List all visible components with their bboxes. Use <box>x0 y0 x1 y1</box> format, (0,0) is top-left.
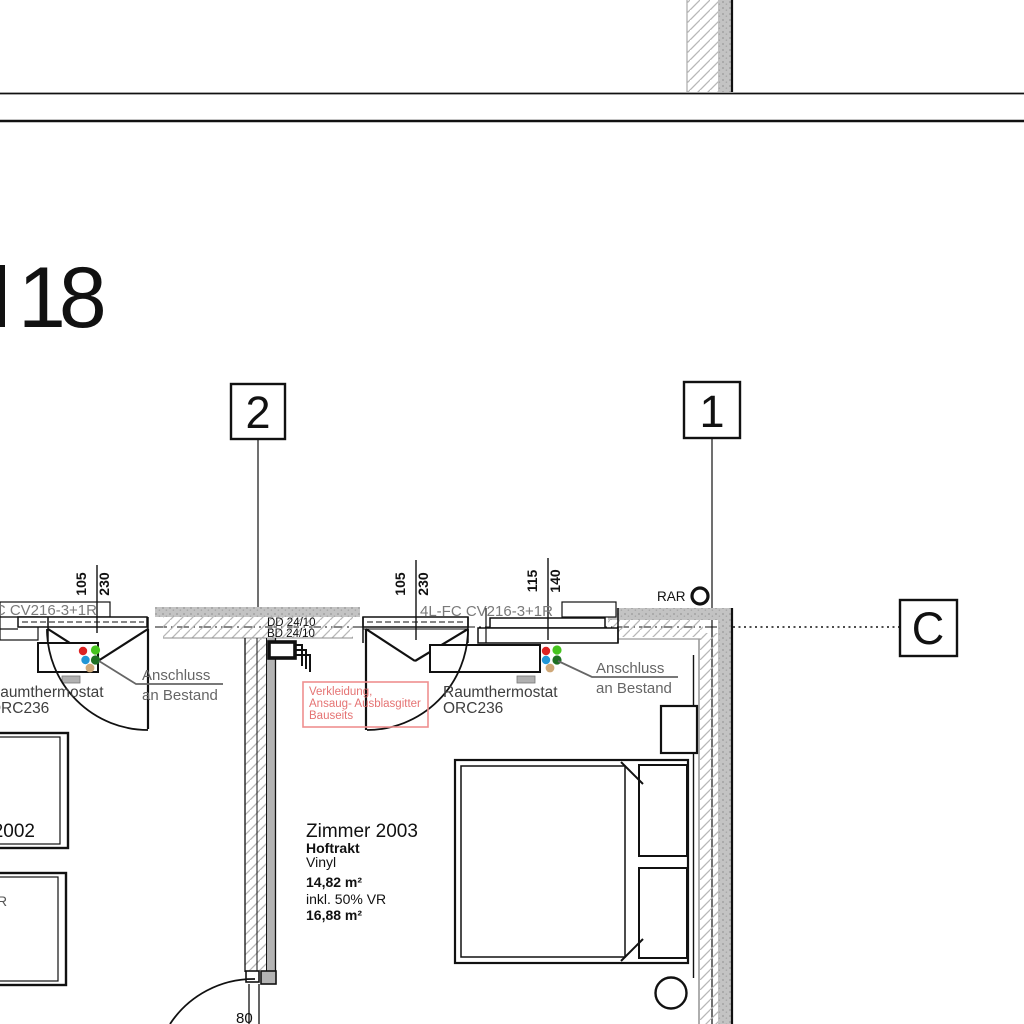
anschluss-right-2: an Bestand <box>596 680 672 697</box>
fancoil-label-right: 4L-FC CV216-3+1R <box>420 603 553 620</box>
room-2003-area-total: 16,88 m² <box>306 907 362 923</box>
anschluss-right-1: Anschluss <box>596 660 664 677</box>
dot-blue <box>81 656 89 664</box>
right-exterior-wall <box>694 608 733 1024</box>
bed-group <box>455 706 697 1009</box>
duct-labels: DD 24/10 BD 24/10 <box>267 617 316 640</box>
dot-blue <box>542 656 550 664</box>
rar-label: RAR <box>657 589 686 604</box>
room-2003-area: 14,82 m² <box>306 874 362 890</box>
left-room-furniture <box>0 733 68 985</box>
duct-label-bd: BD 24/10 <box>267 628 315 640</box>
room-2003-floor: Vinyl <box>306 854 336 870</box>
dot-red <box>79 647 87 655</box>
top-wall-stub <box>687 0 732 92</box>
bottom-door-width: 80 <box>236 1010 253 1024</box>
bed-pillow-bottom <box>639 868 687 958</box>
door-jamb-right <box>261 971 276 984</box>
rar-marker: RAR <box>657 588 708 604</box>
dim-left-num: 105 <box>73 572 89 596</box>
fancoil-label-left: 4L-FC CV216-3+1R <box>0 602 97 619</box>
room-2003-label: Zimmer 2003 Hoftrakt Vinyl 14,82 m² inkl… <box>306 821 418 923</box>
clipped-digit-stroke <box>0 265 5 327</box>
dot-dark-green <box>552 655 561 664</box>
room-2002-name: Zimmer 2002 <box>0 821 35 842</box>
plan-number-text: 18 <box>18 250 104 346</box>
red-annotation-line3: Bauseits <box>309 710 353 722</box>
thermostat-right-2: ORC236 <box>443 700 503 717</box>
dim-mid-num: 105 <box>392 572 408 596</box>
red-annotation-line2: Ansaug- Ausblasgitter <box>309 698 421 710</box>
dim-mid-den: 230 <box>415 572 431 596</box>
dot-red <box>542 647 550 655</box>
room-2003-name: Zimmer 2003 <box>306 821 418 842</box>
nightstand <box>661 706 697 753</box>
floor-plan-sheet: 18 2 1 C <box>0 0 1024 1024</box>
dot-green <box>552 645 561 654</box>
bed-blanket <box>461 766 625 957</box>
dot-green <box>91 645 100 654</box>
bed-pillow-top <box>639 765 687 856</box>
dot-tan <box>86 664 95 673</box>
dim-right-num: 115 <box>524 569 540 592</box>
dot-dark-green <box>91 655 100 664</box>
grid-label-1: 1 <box>699 386 724 437</box>
stool-circle <box>656 978 687 1009</box>
room-2003-incl: inkl. 50% VR <box>306 891 386 907</box>
dot-tan <box>546 664 555 673</box>
rar-circle <box>692 588 708 604</box>
clipped-label-r: R <box>0 893 7 909</box>
thermostat-left-2: ORC236 <box>0 700 49 717</box>
plan-number: 18 <box>0 250 104 346</box>
door-jamb-left <box>246 971 259 982</box>
right-thermostat-tab <box>517 676 535 683</box>
dim-right-den: 140 <box>547 569 563 593</box>
grid-label-c: C <box>912 603 945 654</box>
red-annotation-line1: Verkleidung, <box>309 686 372 698</box>
thermostat-left-1: Raumthermostat <box>0 684 104 701</box>
left-thermostat-tab <box>62 676 80 683</box>
anschluss-left-1: Anschluss <box>142 667 210 684</box>
floor-plan-drawing: 18 2 1 C <box>0 0 1024 1024</box>
sheet-border-lines <box>0 94 1024 122</box>
thermostat-labels: Raumthermostat ORC236 Raumthermostat ORC… <box>0 684 558 717</box>
anschluss-left-2: an Bestand <box>142 687 218 704</box>
dim-left-den: 230 <box>96 572 112 596</box>
thermostat-right-1: Raumthermostat <box>443 684 558 701</box>
right-fancoil-body <box>430 645 540 672</box>
grid-label-2: 2 <box>245 387 270 438</box>
right-connection-dots <box>542 645 562 672</box>
